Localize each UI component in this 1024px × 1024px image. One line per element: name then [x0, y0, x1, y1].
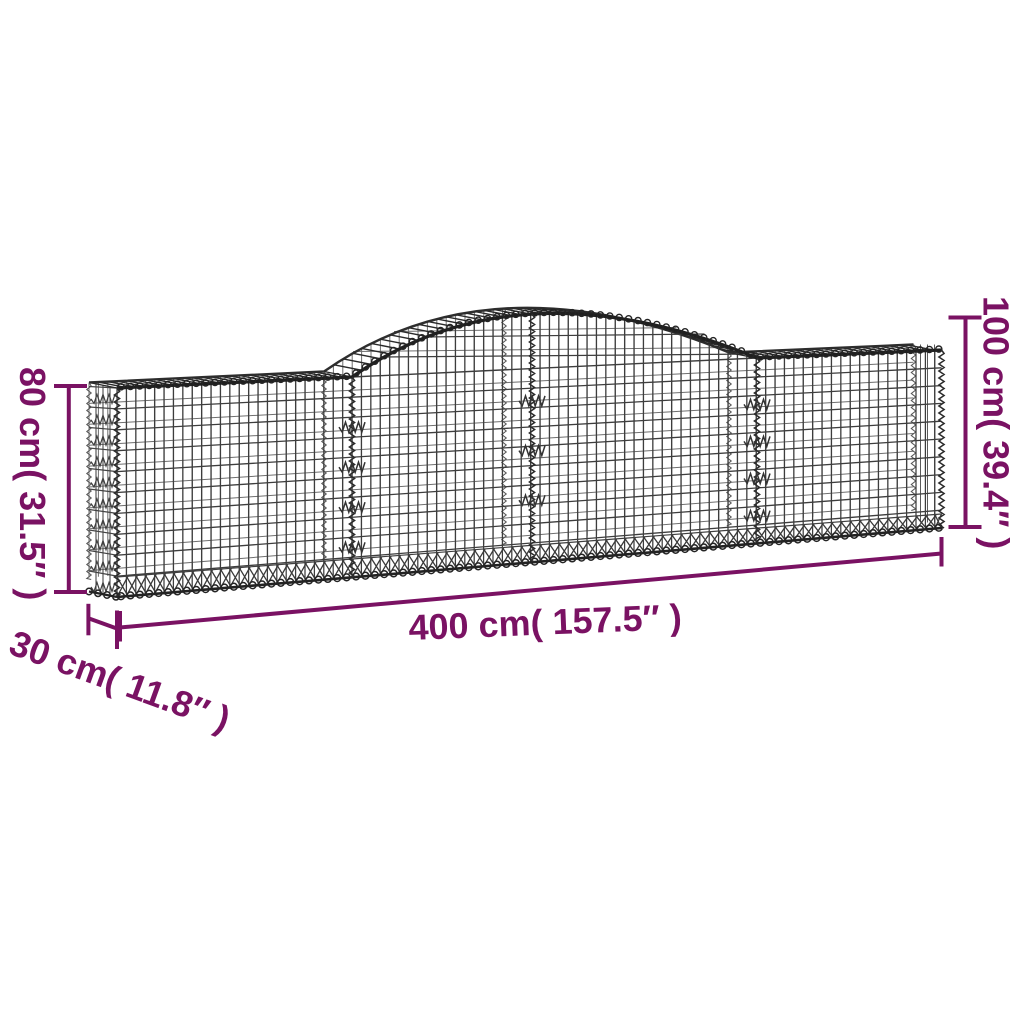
svg-text:80 cm( 31.5″ ): 80 cm( 31.5″ ) [12, 367, 53, 600]
svg-text:100 cm( 39.4″ ): 100 cm( 39.4″ ) [976, 296, 1017, 549]
